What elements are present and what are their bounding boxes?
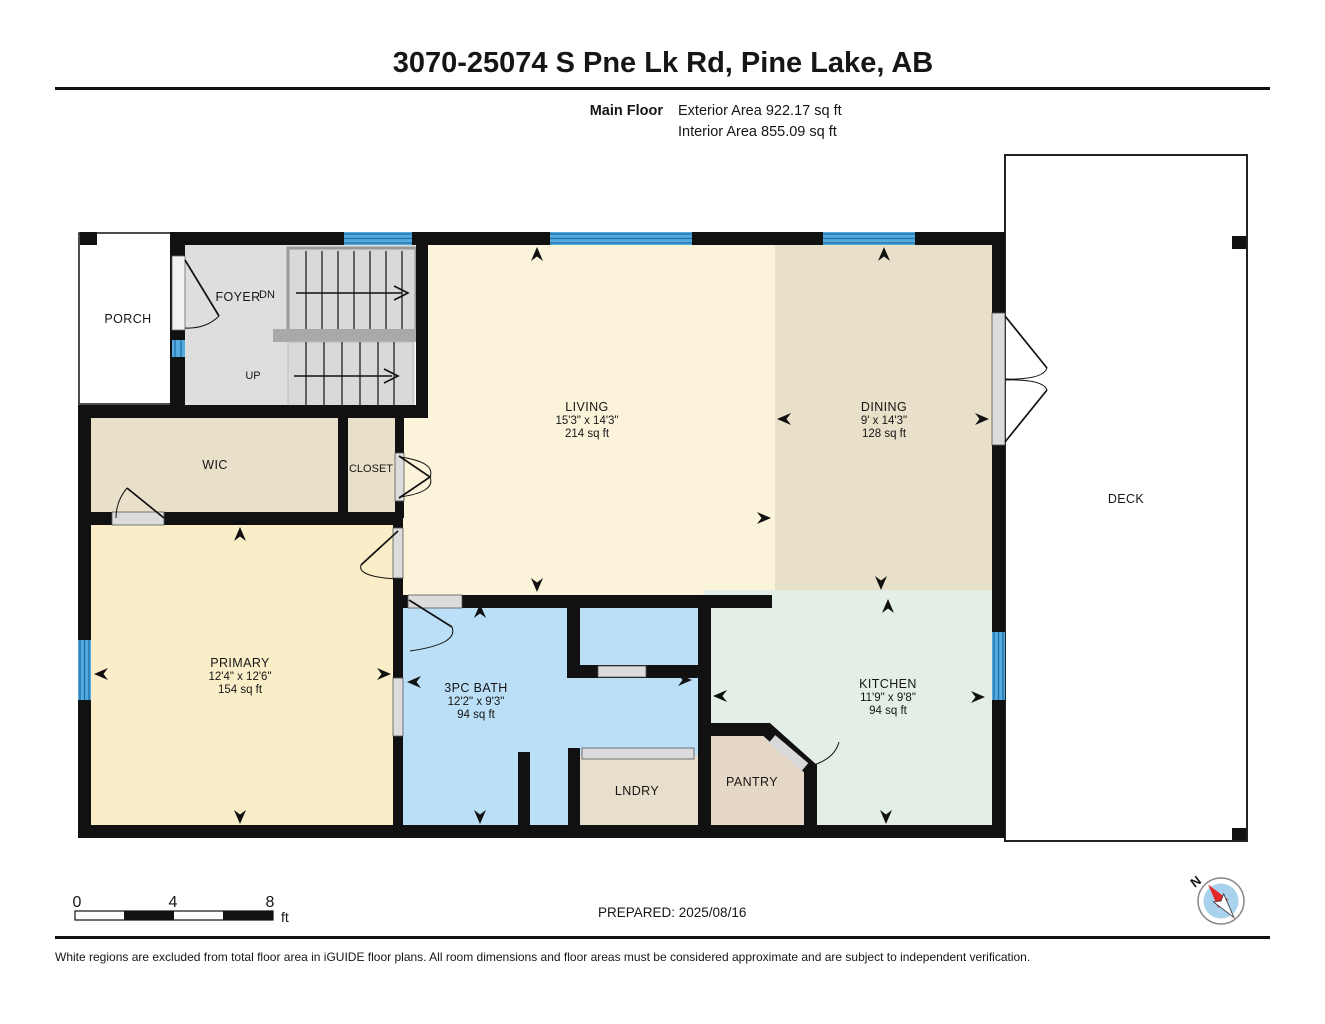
footer: White regions are excluded from total fl… <box>55 936 1270 964</box>
living-label: LIVING <box>565 400 608 414</box>
dining-label: DINING <box>861 400 907 414</box>
foyer-label: FOYER <box>215 290 260 304</box>
scale-tick-0: 0 <box>73 894 82 911</box>
room-fills <box>79 233 992 828</box>
kitchen-area: 94 sq ft <box>869 705 908 717</box>
closet-label: CLOSET <box>349 463 393 475</box>
wall-pantry-right <box>804 764 817 828</box>
header: 3070-25074 S Pne Lk Rd, Pine Lake, AB Ma… <box>55 47 1270 140</box>
bath-area: 94 sq ft <box>457 709 496 721</box>
bath-label: 3PC BATH <box>444 681 507 695</box>
deck-post-top <box>1232 236 1246 249</box>
stairs <box>273 248 416 408</box>
wic-label: WIC <box>202 458 228 472</box>
stairs-divider <box>273 329 416 342</box>
primary-dims: 12'4" x 12'6" <box>208 671 271 683</box>
compass: N <box>1187 873 1244 924</box>
wall-left <box>78 405 91 838</box>
bath-door-opening <box>408 595 462 608</box>
wall-bottom <box>78 825 1005 838</box>
interior-area-label: Interior Area 855.09 sq ft <box>678 124 837 140</box>
primary-label: PRIMARY <box>210 656 270 670</box>
laundry-opening <box>582 748 694 759</box>
living-dims: 15'3" x 14'3" <box>555 415 618 427</box>
exterior-area-label: Exterior Area 922.17 sq ft <box>678 103 842 119</box>
kitchen-label: KITCHEN <box>859 677 917 691</box>
deck-label: DECK <box>1108 492 1145 506</box>
scale-bar-seg2 <box>223 911 273 920</box>
closet-door-opening <box>395 453 404 501</box>
footer-disclaimer: White regions are excluded from total fl… <box>55 950 1030 964</box>
porch-label: PORCH <box>104 312 151 326</box>
wall-bath-kitchen <box>698 595 711 828</box>
stairs-dn-label: DN <box>259 289 275 301</box>
scale-tick-8: 8 <box>266 894 275 911</box>
wall-under-foyer <box>78 405 425 418</box>
primary-door-opening <box>393 528 403 578</box>
scale-bar-seg1 <box>124 911 174 920</box>
floor-label: Main Floor <box>590 103 664 119</box>
footer-divider <box>55 936 1270 939</box>
stairs-down-box <box>288 248 416 333</box>
dining-area: 128 sq ft <box>862 428 907 440</box>
bath-dims: 12'2" x 9'3" <box>448 696 505 708</box>
porch-door-opening <box>172 256 185 330</box>
scale-tick-4: 4 <box>169 894 178 911</box>
window-foyer <box>172 340 185 357</box>
floor-plan-svg: 3070-25074 S Pne Lk Rd, Pine Lake, AB Ma… <box>0 0 1325 1024</box>
laundry-label: LNDRY <box>615 784 659 798</box>
page-title: 3070-25074 S Pne Lk Rd, Pine Lake, AB <box>393 47 934 79</box>
dining-dims: 9' x 14'3" <box>861 415 907 427</box>
wall-wic-closet <box>338 415 348 515</box>
wall-pantry-top <box>698 723 770 736</box>
prepared-label: PREPARED: 2025/08/16 <box>598 905 746 920</box>
floor-plan-page: 3070-25074 S Pne Lk Rd, Pine Lake, AB Ma… <box>0 0 1325 1024</box>
wall-bath-stub <box>518 752 530 838</box>
scale-unit: ft <box>281 909 289 925</box>
primary-area: 154 sq ft <box>218 684 263 696</box>
wall-stairs-living <box>416 245 428 418</box>
kitchen-dims: 11'9" x 9'8" <box>860 692 916 704</box>
wic-door-opening <box>112 512 164 525</box>
scale-bar: 0 4 8 ft <box>73 894 289 925</box>
header-divider <box>55 87 1270 90</box>
deck-post-bottom <box>1232 828 1246 840</box>
ensuite-opening <box>393 678 403 736</box>
wall-laundry-left <box>568 748 580 838</box>
shower-slider-door <box>598 666 646 677</box>
pantry-label: PANTRY <box>726 775 778 789</box>
porch-corner-post <box>80 232 97 245</box>
stairs-up-label: UP <box>245 370 260 382</box>
deck-door-opening <box>992 313 1005 445</box>
living-area: 214 sq ft <box>565 428 610 440</box>
